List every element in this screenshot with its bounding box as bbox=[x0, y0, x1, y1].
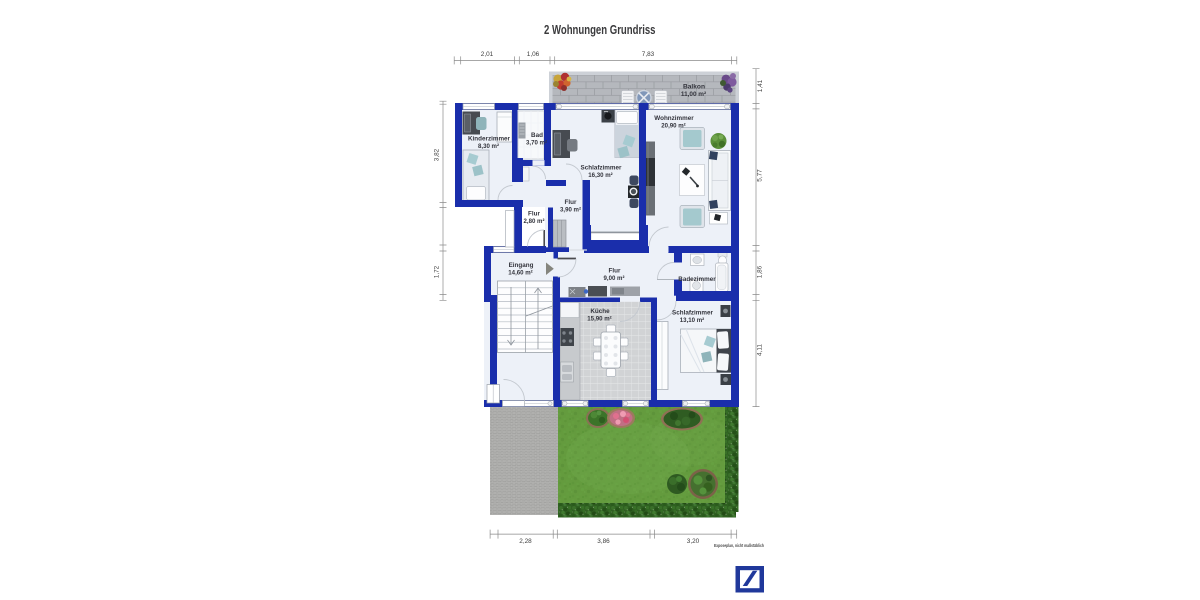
svg-text:Exposeplan, nicht maßstäblich: Exposeplan, nicht maßstäblich bbox=[714, 543, 764, 548]
svg-text:16,30 m²: 16,30 m² bbox=[588, 172, 612, 179]
svg-text:3,20: 3,20 bbox=[687, 538, 700, 545]
svg-text:Küche: Küche bbox=[590, 308, 610, 315]
svg-text:2,28: 2,28 bbox=[519, 538, 532, 545]
svg-text:Eingang: Eingang bbox=[509, 262, 534, 269]
svg-text:13,10 m²: 13,10 m² bbox=[680, 317, 704, 324]
svg-text:2,80 m²: 2,80 m² bbox=[523, 218, 544, 225]
svg-text:1,41: 1,41 bbox=[757, 79, 764, 92]
svg-text:8,30 m²: 8,30 m² bbox=[478, 143, 499, 150]
svg-text:3,70 m²: 3,70 m² bbox=[526, 140, 547, 147]
svg-text:4,11: 4,11 bbox=[757, 344, 764, 356]
svg-text:9,00 m²: 9,00 m² bbox=[603, 275, 624, 282]
svg-text:7,83: 7,83 bbox=[642, 51, 655, 58]
svg-text:3,86: 3,86 bbox=[597, 538, 610, 545]
svg-text:1,86: 1,86 bbox=[757, 265, 764, 278]
svg-text:2,01: 2,01 bbox=[481, 51, 494, 58]
svg-text:15,90 m²: 15,90 m² bbox=[587, 316, 611, 323]
svg-text:Kinderzimmer: Kinderzimmer bbox=[468, 136, 511, 143]
svg-text:Badezimmer: Badezimmer bbox=[678, 276, 716, 283]
svg-text:Balkon: Balkon bbox=[683, 84, 705, 91]
svg-text:1,72: 1,72 bbox=[434, 265, 441, 278]
svg-text:14,60 m²: 14,60 m² bbox=[508, 270, 532, 277]
svg-text:2 Wohnungen Grundriss: 2 Wohnungen Grundriss bbox=[544, 23, 656, 37]
svg-text:Flur: Flur bbox=[609, 268, 621, 275]
svg-text:3,90 m²: 3,90 m² bbox=[560, 207, 581, 214]
svg-text:1,06: 1,06 bbox=[527, 51, 540, 58]
svg-text:Flur: Flur bbox=[565, 199, 577, 206]
svg-text:Bad: Bad bbox=[531, 132, 543, 139]
svg-text:Schlafzimmer: Schlafzimmer bbox=[581, 165, 622, 172]
svg-text:11,00 m²: 11,00 m² bbox=[681, 91, 706, 98]
svg-text:Wohnzimmer: Wohnzimmer bbox=[654, 115, 694, 122]
svg-text:Schlafzimmer: Schlafzimmer bbox=[672, 310, 713, 317]
svg-text:20,90 m²: 20,90 m² bbox=[661, 123, 685, 130]
svg-text:3,82: 3,82 bbox=[434, 148, 441, 161]
svg-text:Flur: Flur bbox=[528, 211, 540, 218]
svg-text:5,77: 5,77 bbox=[757, 169, 764, 182]
